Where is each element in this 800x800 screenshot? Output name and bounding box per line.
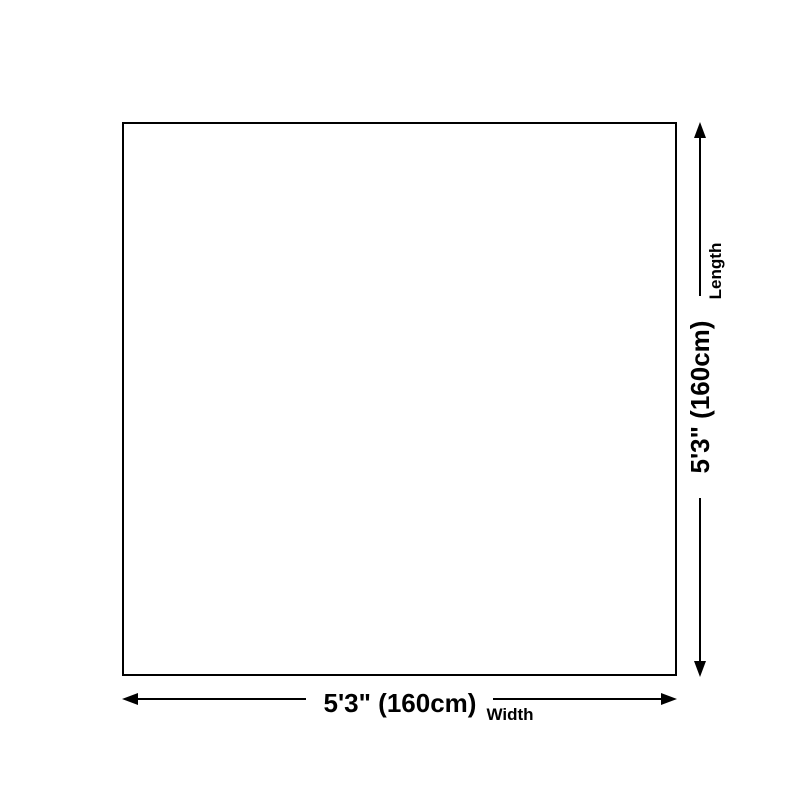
width-dimension-line-left — [136, 698, 306, 700]
arrow-right-icon — [661, 693, 677, 705]
product-outline — [122, 122, 677, 676]
width-dimension-label: Width — [485, 706, 535, 724]
length-dimension-value: 5'3" (160cm) — [686, 297, 714, 497]
width-dimension-line-right — [493, 698, 661, 700]
arrow-down-icon — [694, 661, 706, 677]
size-diagram: 5'3" (160cm) Width Length 5'3" (160cm) — [0, 0, 800, 800]
length-dimension-line-top — [699, 136, 701, 296]
length-dimension-line-bottom — [699, 498, 701, 661]
width-dimension-value: 5'3" (160cm) — [300, 689, 500, 717]
